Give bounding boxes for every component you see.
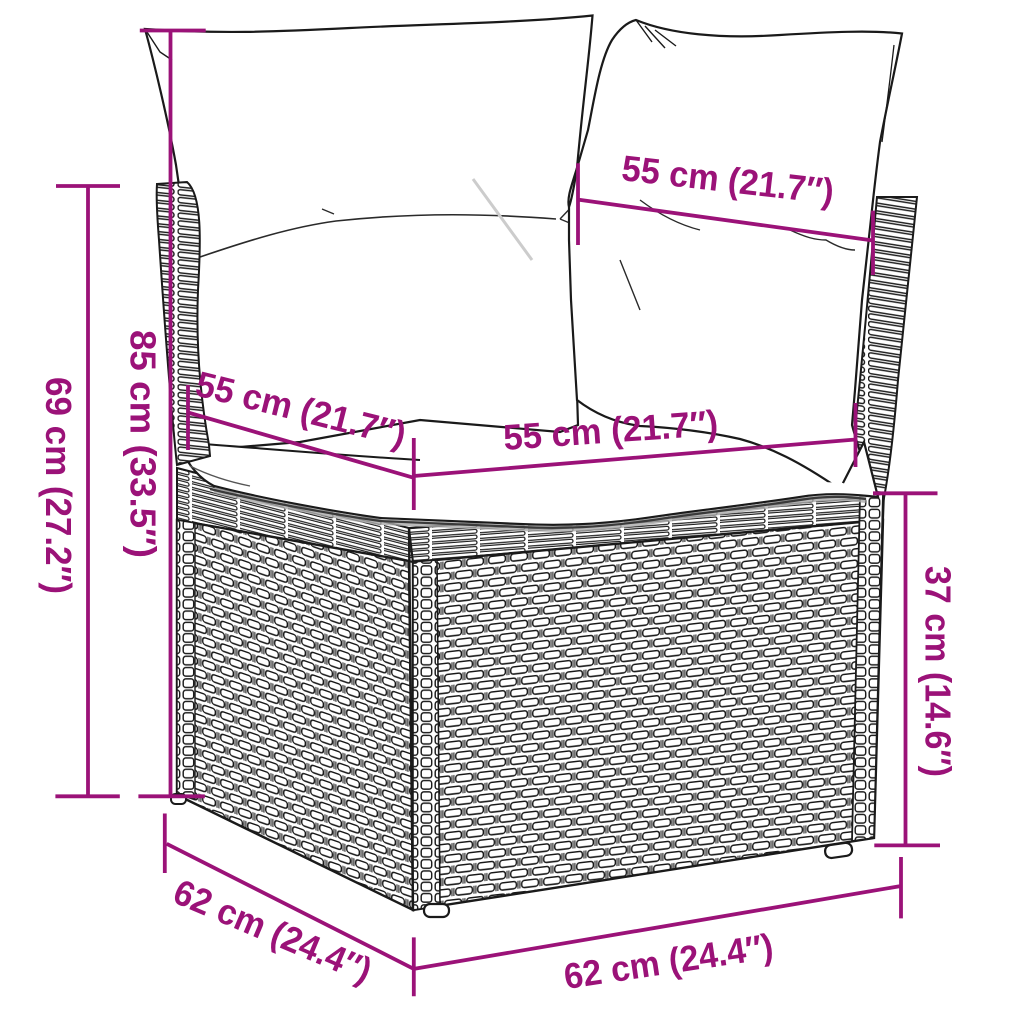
- svg-text:37 cm (14.6″): 37 cm (14.6″): [918, 566, 959, 777]
- svg-text:69 cm (27.2″): 69 cm (27.2″): [38, 377, 79, 594]
- svg-text:85 cm (33.5″): 85 cm (33.5″): [123, 330, 164, 558]
